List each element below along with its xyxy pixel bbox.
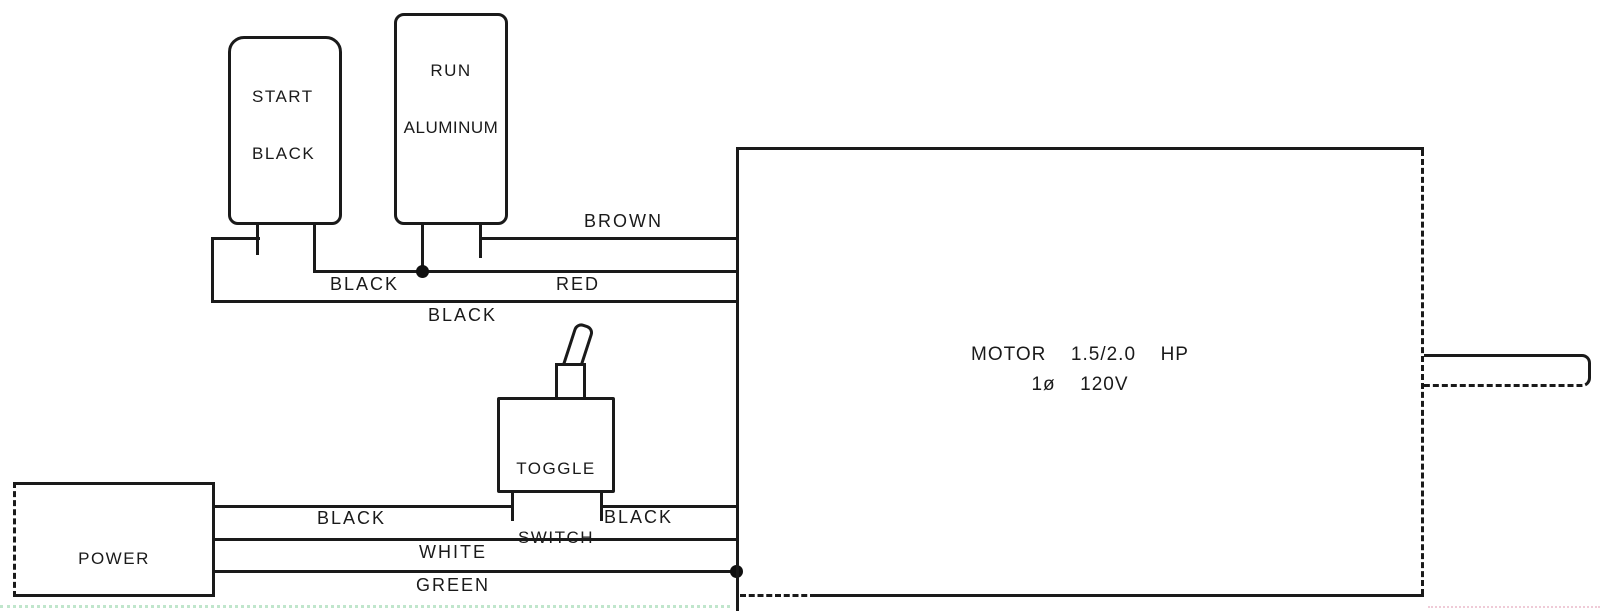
wire-start-loop-vertical [211, 237, 214, 303]
wire-black-start-loop [211, 300, 739, 303]
motor-bottom-edge [814, 594, 1424, 597]
wire-label-brown: BROWN [584, 211, 663, 232]
wire-brown [480, 237, 739, 240]
start-capacitor-terminal-left [256, 225, 259, 255]
motor-left-edge [736, 147, 739, 611]
toggle-switch-label: TOGGLE SWITCH [497, 411, 615, 595]
wire-start-loop-top [211, 237, 260, 240]
power-cord-label: POWER CORD W/GFCI [13, 504, 215, 611]
wire-label-black-cord: BLACK [317, 508, 386, 529]
start-capacitor-label-line2: BLACK [252, 144, 315, 163]
junction-dot-run-capacitor [416, 265, 429, 278]
motor-shaft [1424, 354, 1591, 387]
run-capacitor-label-line2: ALUMINUM [394, 118, 508, 137]
toggle-switch-label-line1: TOGGLE [497, 457, 615, 480]
wire-label-black-switch: BLACK [604, 507, 673, 528]
wire-black-red [314, 270, 739, 273]
wire-green [213, 570, 739, 573]
scan-artifact-pink-dots [1428, 606, 1600, 608]
run-capacitor-label: RUN ALUMINUM [394, 23, 508, 175]
wire-label-green: GREEN [416, 575, 490, 596]
run-capacitor-label-line1: RUN [394, 61, 508, 80]
wiring-diagram: START BLACK RUN ALUMINUM BROWN BLACK RED… [0, 0, 1600, 611]
wire-label-black-loop: BLACK [428, 305, 497, 326]
start-capacitor-terminal-right [313, 225, 316, 273]
start-capacitor-label-line1: START [252, 87, 315, 106]
motor-label-line1: MOTOR 1.5/2.0 HP [960, 344, 1200, 366]
wire-label-white: WHITE [419, 542, 487, 563]
motor-top-edge [736, 147, 1424, 150]
wire-label-black-start: BLACK [330, 274, 399, 295]
run-capacitor-terminal-right [479, 225, 482, 258]
wire-white [213, 538, 739, 541]
wire-label-red: RED [556, 274, 600, 295]
power-cord-label-line1: POWER [13, 548, 215, 570]
scan-artifact-green-dots [0, 605, 730, 608]
motor-label-line2: 1ø 120V [960, 374, 1200, 396]
start-capacitor-label: START BLACK [252, 49, 315, 201]
toggle-bushing [555, 363, 586, 399]
motor-bottom-edge-dashed [740, 594, 816, 597]
